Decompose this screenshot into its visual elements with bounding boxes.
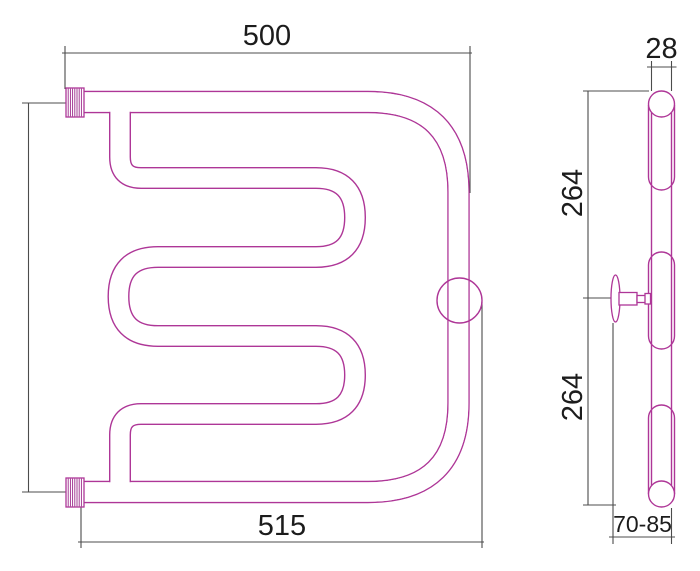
label-pipe-diameter: 28 [645,33,677,65]
dimension-pipe-diameter [647,61,677,91]
bracket-arm [619,293,637,306]
serpentine-pipe-fill [119,104,356,490]
serpentine-pipe-outline [119,104,356,490]
bottom-connector-threads [68,479,81,507]
wall-bracket [611,275,651,322]
bracket-collar [645,294,651,305]
pipe-end-cap-top [649,91,675,117]
tube-capsule-middle [649,252,675,349]
dimension-left-span [22,103,66,492]
main-loop-interior-mask [84,102,459,492]
bottom-connector [66,478,84,507]
label-bottom-width: 515 [258,510,306,542]
top-connector-threads [68,89,81,117]
main-loop-pipe-outline [84,102,459,492]
main-loop-pipe-fill [84,102,459,492]
label-upper-length: 264 [557,169,589,217]
label-lower-length: 264 [557,373,589,421]
label-wall-distance: 70-85 [613,511,672,537]
label-top-width: 500 [243,20,291,52]
side-view [611,91,675,507]
tube-capsule-upper [649,105,675,190]
drawing-svg: 500 515 28 264 264 70-85 [0,0,700,571]
pipe-end-cap-bottom [649,481,675,507]
towel-warmer-technical-drawing: 500 515 28 264 264 70-85 [0,0,700,571]
top-connector [66,88,84,117]
front-view [66,88,482,507]
